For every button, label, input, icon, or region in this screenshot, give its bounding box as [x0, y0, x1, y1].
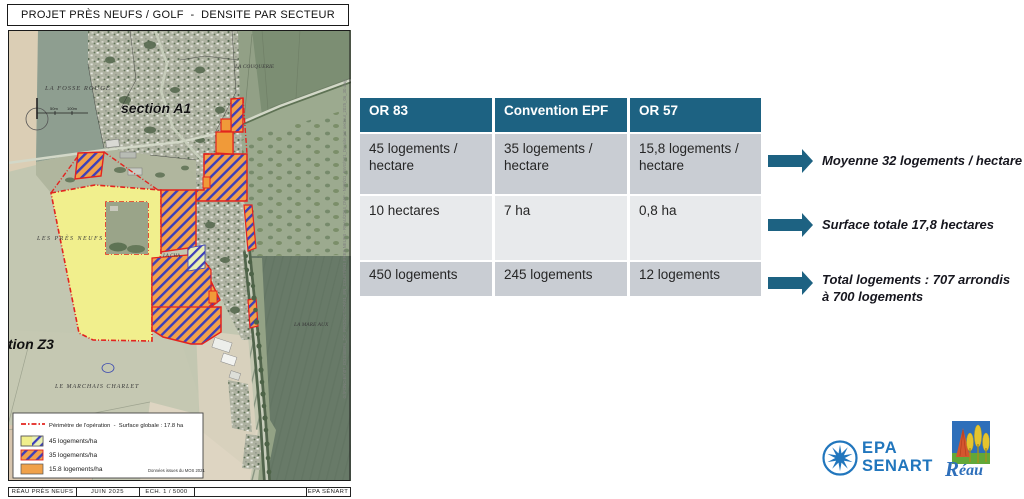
svg-text:LES PRÈS NEUFS: LES PRÈS NEUFS: [36, 234, 104, 242]
svg-text:section A1: section A1: [121, 100, 191, 116]
svg-text:LE MARCHAIS CHARLET: LE MARCHAIS CHARLET: [54, 384, 139, 390]
svg-text:SENART: SENART: [862, 457, 933, 475]
svg-text:éau: éau: [959, 462, 983, 479]
svg-text:50m: 50m: [50, 106, 58, 111]
svg-text:35 logements/ha: 35 logements/ha: [49, 452, 97, 459]
svg-text:LA MARE AUX: LA MARE AUX: [293, 322, 329, 328]
svg-text:Données issues du MOS 2021: Données issues du MOS 2021: [148, 468, 205, 473]
svg-text:tion Z3: tion Z3: [8, 336, 54, 352]
svg-text:LA COUQUERIE: LA COUQUERIE: [234, 64, 275, 70]
svg-text:EPA: EPA: [862, 439, 898, 457]
svg-text:Périmètre de l'opération - S: Périmètre de l'opération - Surface globa…: [49, 423, 184, 429]
svg-text:R: R: [944, 457, 959, 481]
svg-text:LA FOSSE ROUGE: LA FOSSE ROUGE: [44, 85, 111, 92]
svg-text:15.8 logements/ha: 15.8 logements/ha: [49, 466, 103, 473]
svg-text:G:\FONCIER\07_DOSSIERS_DC_PROD: G:\FONCIER\07_DOSSIERS_DC_PRODUCTION\31_…: [342, 79, 347, 399]
svg-text:100m: 100m: [67, 106, 78, 111]
svg-text:45 logements/ha: 45 logements/ha: [49, 438, 97, 445]
svg-text:LA CHA: LA CHA: [162, 254, 181, 259]
